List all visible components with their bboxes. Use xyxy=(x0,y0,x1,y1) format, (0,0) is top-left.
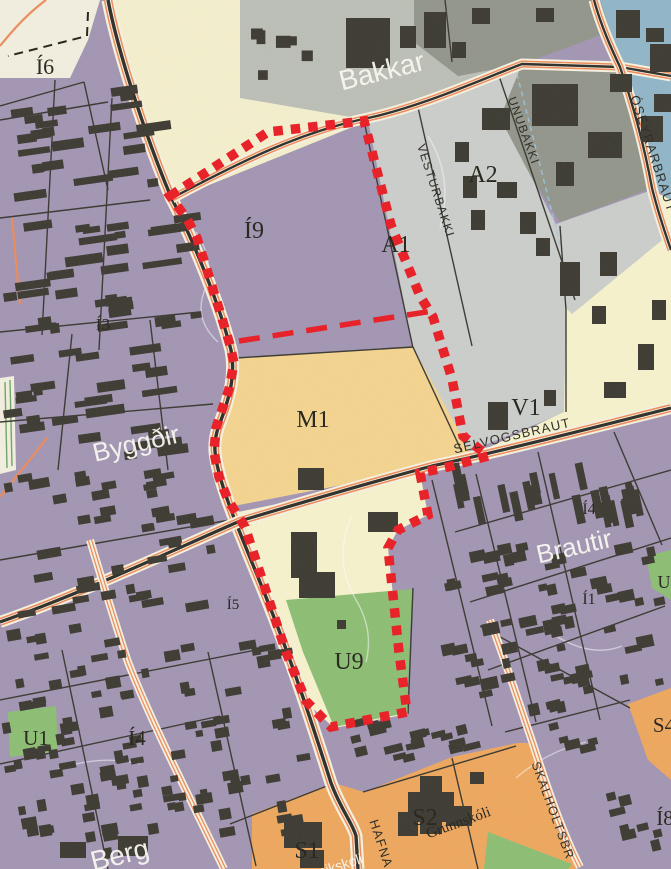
zoning-map: Í6Í3Í9A1A2M1V1Í4Í1UÍ5U9U1Í4S1S2S4Í8Grunn… xyxy=(0,0,671,869)
zoning-map-viewport: Í6Í3Í9A1A2M1V1Í4Í1UÍ5U9U1Í4S1S2S4Í8Grunn… xyxy=(0,0,671,869)
scan-grain-overlay xyxy=(0,0,671,869)
